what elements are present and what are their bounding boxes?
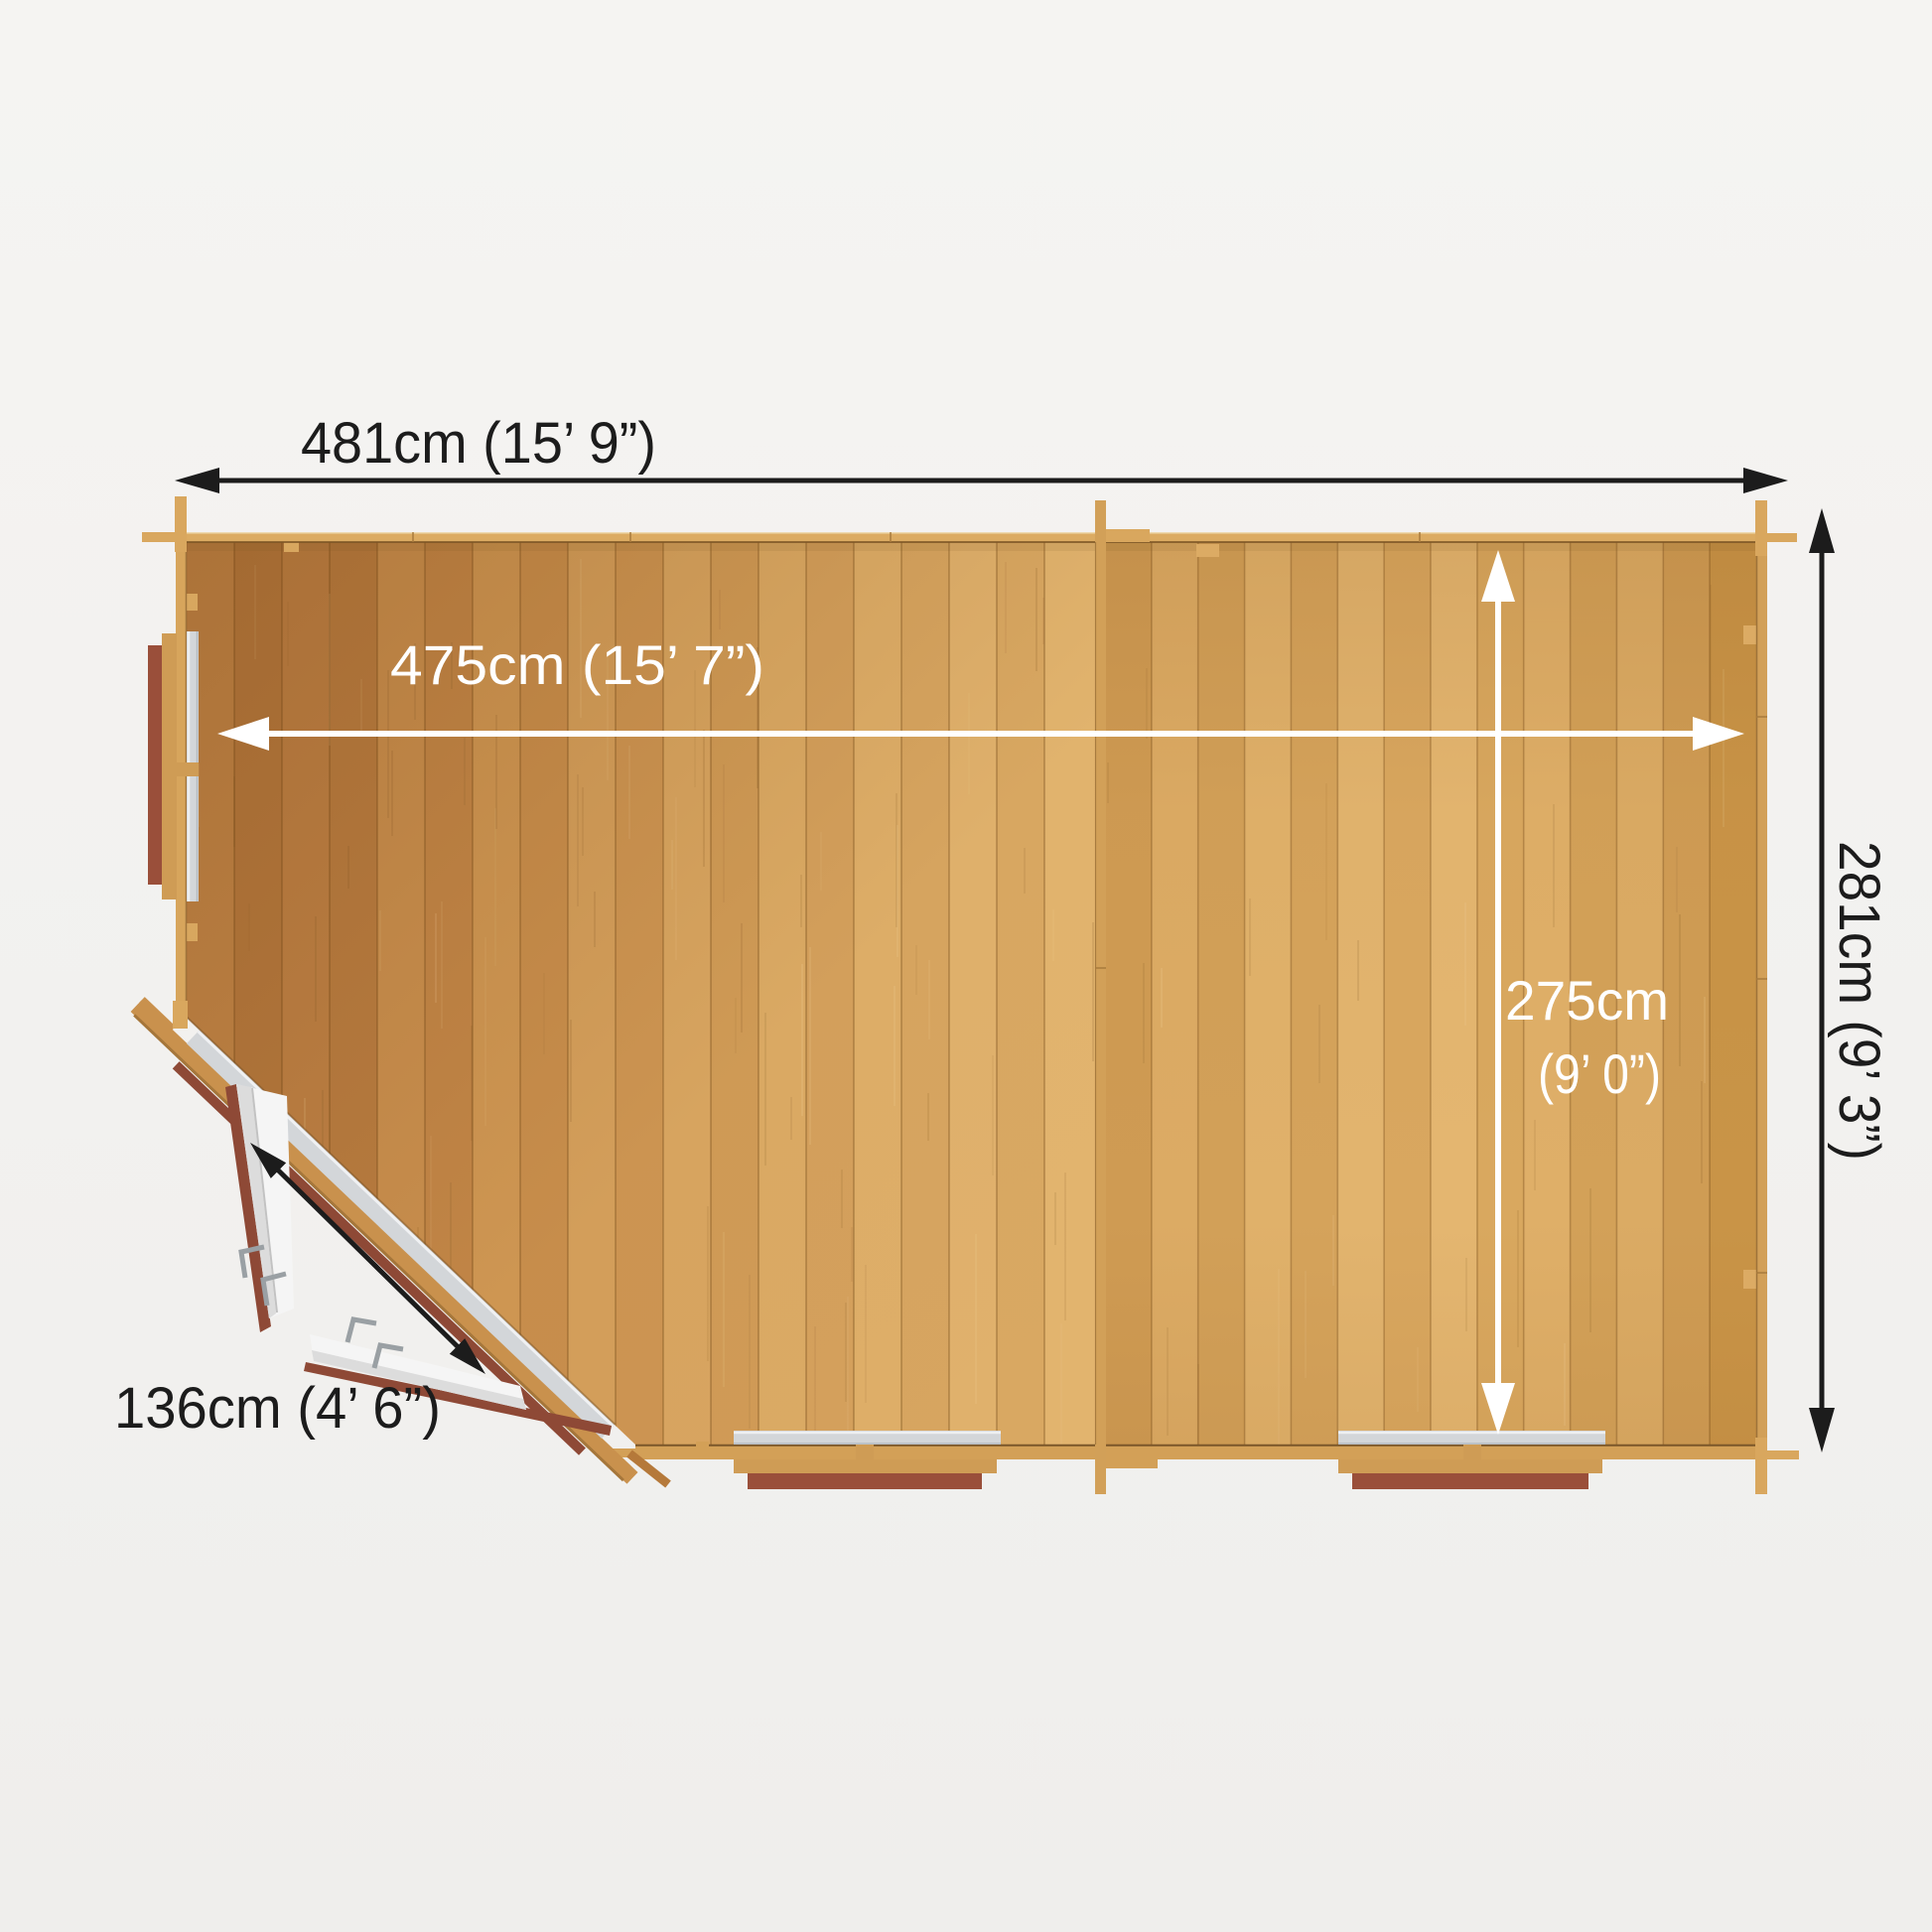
svg-text:136cm (4’ 6”): 136cm (4’ 6”) xyxy=(114,1376,441,1441)
svg-text:275cm: 275cm xyxy=(1505,969,1669,1032)
svg-text:281cm (9’ 3”): 281cm (9’ 3”) xyxy=(1827,841,1891,1161)
svg-text:(9’ 0”): (9’ 0”) xyxy=(1538,1042,1661,1105)
svg-text:475cm (15’ 7”): 475cm (15’ 7”) xyxy=(390,633,764,696)
svg-text:481cm (15’ 9”): 481cm (15’ 9”) xyxy=(301,411,656,476)
